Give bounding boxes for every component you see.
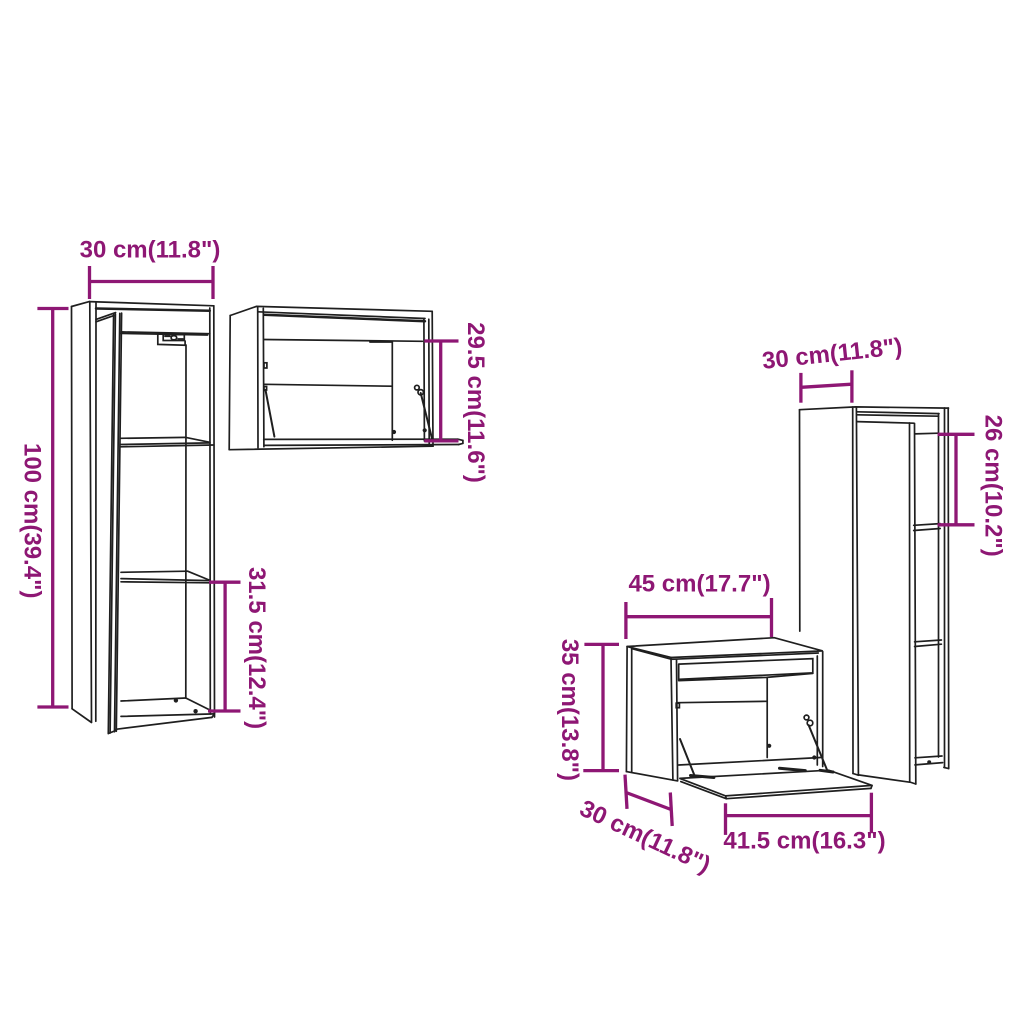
svg-text:29.5 cm(11.6"): 29.5 cm(11.6") [462,322,489,483]
svg-text:35 cm(13.8"): 35 cm(13.8") [556,639,583,781]
svg-text:30 cm(11.8"): 30 cm(11.8") [80,237,221,264]
svg-text:31.5 cm(12.4"): 31.5 cm(12.4") [243,567,270,729]
svg-text:41.5 cm(16.3"): 41.5 cm(16.3") [723,828,885,855]
svg-text:26 cm(10.2"): 26 cm(10.2") [980,415,1007,557]
svg-text:45 cm(17.7"): 45 cm(17.7") [628,571,770,598]
svg-text:100 cm(39.4"): 100 cm(39.4") [18,443,45,598]
